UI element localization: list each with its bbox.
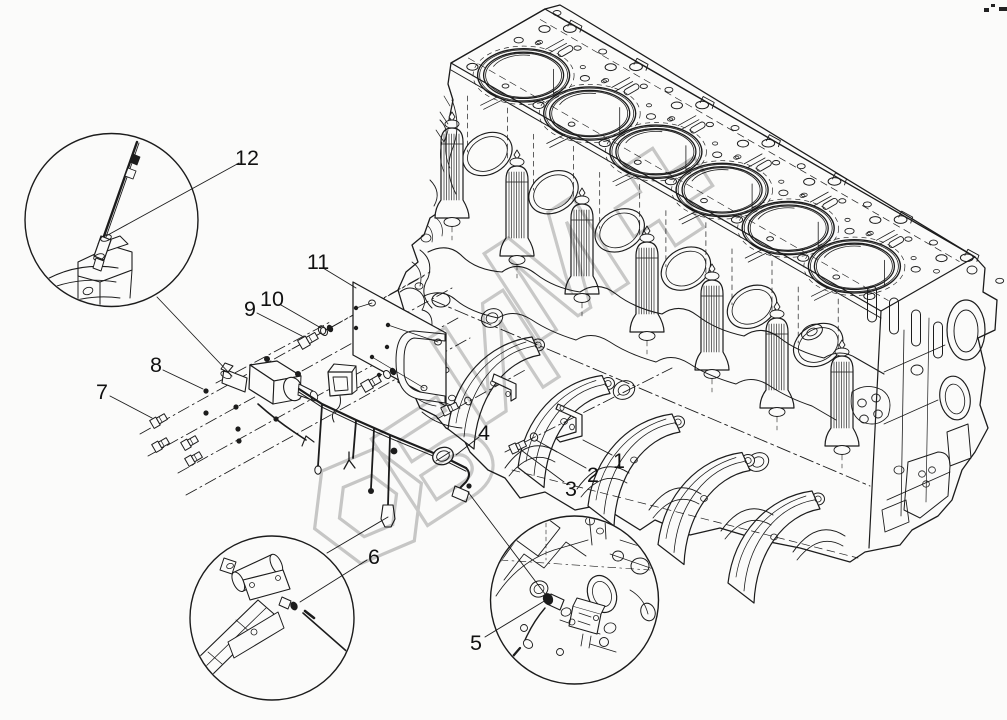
svg-text:12: 12 (235, 146, 259, 170)
svg-text:7: 7 (96, 380, 108, 404)
svg-text:5: 5 (470, 631, 482, 655)
svg-text:2: 2 (587, 463, 599, 487)
svg-text:3: 3 (565, 477, 577, 501)
svg-text:8: 8 (150, 353, 162, 377)
svg-text:9: 9 (244, 297, 256, 321)
svg-text:1: 1 (613, 449, 625, 473)
svg-text:10: 10 (260, 287, 284, 311)
svg-text:11: 11 (307, 250, 329, 274)
